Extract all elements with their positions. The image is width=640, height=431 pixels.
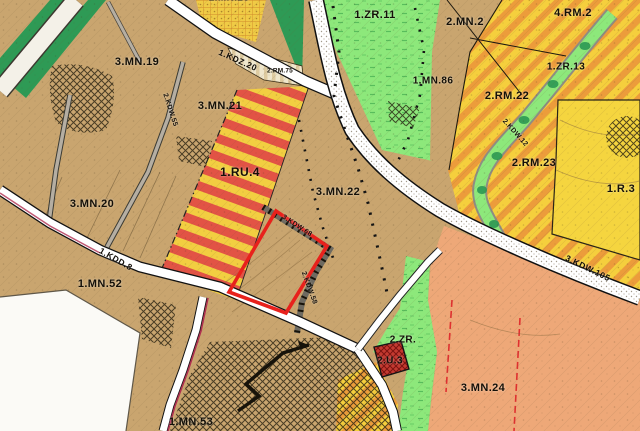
zoning-map[interactable]: 1.ZR.11 2.MN.2 4.RM.2 2.MN.25 3.MN.19 1.…: [0, 0, 640, 431]
builtup-hatch-1: [50, 64, 114, 132]
zoning-map-graphics: [0, 0, 640, 431]
